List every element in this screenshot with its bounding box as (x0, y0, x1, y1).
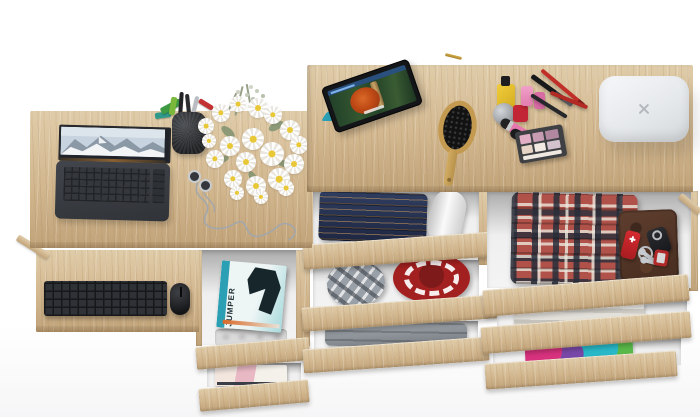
eyeshadow-pan (521, 145, 533, 155)
daisy (290, 136, 308, 154)
daisy (260, 142, 284, 166)
tablet-frame (321, 58, 424, 133)
daisy (206, 150, 224, 168)
daisy (254, 190, 268, 204)
tablet (322, 64, 422, 130)
eyeshadow-pan (547, 140, 561, 150)
eyeshadow-pan (519, 134, 531, 145)
eyeshadow-pan (545, 129, 559, 140)
daisy (224, 170, 242, 188)
magazine-stack-edge (223, 320, 280, 329)
magazine-cover-figure (245, 267, 283, 316)
daisy-bouquet (190, 84, 316, 204)
mouse (170, 283, 190, 315)
daisy (230, 186, 244, 200)
daisy (242, 128, 264, 150)
red-key-tag (653, 249, 669, 267)
daisy (202, 134, 216, 148)
daisy (220, 136, 240, 156)
tablet-screen-video (327, 65, 417, 128)
mountain-wallpaper (60, 127, 165, 158)
laptop (51, 122, 175, 221)
eyeshadow-pan (532, 131, 544, 142)
scene-desk-dresser-top-view: JUMPER (0, 0, 700, 417)
daisy (278, 180, 294, 196)
laptop-keyboard (63, 167, 150, 203)
daisy (236, 152, 256, 172)
daisy (230, 96, 246, 112)
polish-cap (501, 76, 510, 86)
hair-pin (445, 53, 462, 60)
smart-hub (599, 76, 689, 142)
daisy (198, 118, 214, 134)
hairbrush-handle (443, 149, 458, 186)
eyeshadow-pan (534, 142, 546, 152)
nail-polish-red (513, 105, 528, 122)
laptop-body (55, 161, 170, 222)
magazine-jumper: JUMPER (216, 260, 287, 332)
laptop-side-keys (152, 169, 165, 203)
daisy (264, 106, 282, 124)
folded-jeans (318, 190, 428, 244)
daisy (212, 104, 230, 122)
keyboard (44, 281, 167, 316)
